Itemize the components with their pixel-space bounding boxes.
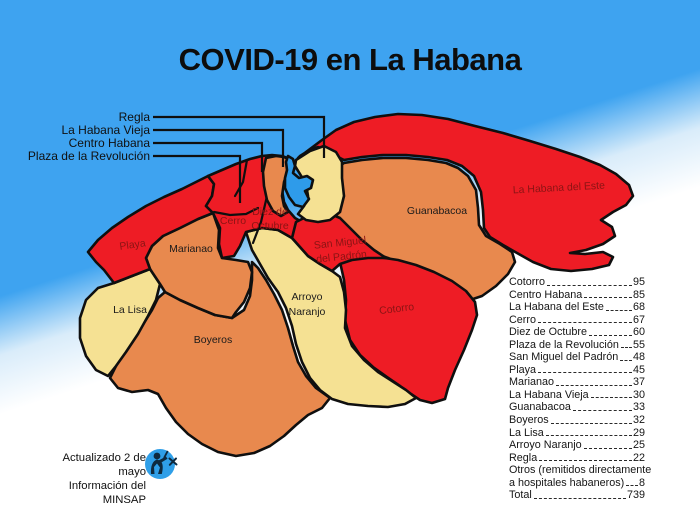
- stat-value: 37: [633, 376, 645, 389]
- label-diez-de-octubre-1: Diez de: [252, 206, 288, 218]
- label-arroyo-naranjo-2: Naranjo: [289, 306, 326, 318]
- stat-label: Boyeros: [509, 414, 549, 427]
- stat-leader: [584, 297, 632, 298]
- stat-value: 60: [633, 326, 645, 339]
- stat-row-marianao: Marianao37: [509, 376, 645, 389]
- updated-date-text: Actualizado 2 de mayo: [34, 451, 146, 479]
- label-arroyo-naranjo-1: Arroyo: [292, 291, 323, 303]
- stat-label: Centro Habana: [509, 289, 582, 302]
- stat-leader: [591, 397, 632, 398]
- stat-label: Guanabacoa: [509, 401, 571, 414]
- stat-leader: [626, 485, 638, 486]
- stat-value: 67: [633, 314, 645, 327]
- stat-value: 30: [633, 389, 645, 402]
- stat-row-plaza: Plaza de la Revolución55: [509, 339, 645, 352]
- stat-label: San Miguel del Padrón: [509, 351, 618, 364]
- stat-value: 55: [633, 339, 645, 352]
- stat-row-guanabacoa: Guanabacoa33: [509, 401, 645, 414]
- stat-row-habana-vieja: La Habana Vieja30: [509, 389, 645, 402]
- stat-value: 22: [633, 452, 645, 465]
- stat-label: Cerro: [509, 314, 536, 327]
- stat-value: 85: [633, 289, 645, 302]
- stat-row-playa: Playa45: [509, 364, 645, 377]
- stat-row-cotorro: Cotorro95: [509, 276, 645, 289]
- stat-leader: [584, 448, 632, 449]
- stat-leader: [534, 498, 626, 499]
- stat-leader: [547, 285, 632, 286]
- stat-leader: [556, 385, 632, 386]
- stat-row-diez-de-octubre: Diez de Octubre60: [509, 326, 645, 339]
- callout-label-regla: Regla: [119, 110, 151, 124]
- label-la-lisa: La Lisa: [113, 304, 147, 316]
- minsap-logo: [145, 449, 177, 479]
- stat-row-otros-line1: Otros (remitidos directamente: [509, 464, 645, 477]
- callout-label-centro-habana: Centro Habana: [69, 136, 151, 150]
- stat-row-otros-line2: a hospitales habaneros)8: [509, 477, 645, 490]
- label-guanabacoa: Guanabacoa: [407, 205, 467, 217]
- label-marianao: Marianao: [169, 243, 213, 255]
- stat-row-regla: Regla22: [509, 452, 645, 465]
- label-boyeros: Boyeros: [194, 334, 233, 346]
- stat-value: 95: [633, 276, 645, 289]
- stat-row-la-lisa: La Lisa29: [509, 427, 645, 440]
- stat-row-centro-habana: Centro Habana85: [509, 289, 645, 302]
- cases-list: Cotorro95 Centro Habana85 La Habana del …: [509, 276, 645, 502]
- stat-label: Plaza de la Revolución: [509, 339, 619, 352]
- stat-label: Arroyo Naranjo: [509, 439, 582, 452]
- stat-value: 32: [633, 414, 645, 427]
- callout-label-plaza: Plaza de la Revolución: [28, 149, 150, 163]
- stat-row-total: Total739: [509, 489, 645, 502]
- label-cerro: Cerro: [220, 215, 246, 227]
- update-credit: Actualizado 2 de mayo Información del MI…: [34, 451, 146, 507]
- stat-value: 33: [633, 401, 645, 414]
- stat-row-cerro: Cerro67: [509, 314, 645, 327]
- stat-leader: [551, 423, 632, 424]
- stat-value: 739: [627, 489, 645, 502]
- stat-label: Diez de Octubre: [509, 326, 587, 339]
- callout-label-habana-vieja: La Habana Vieja: [61, 123, 150, 137]
- source-text: Información del MINSAP: [34, 479, 146, 507]
- stat-value: 68: [633, 301, 645, 314]
- stat-leader: [589, 335, 632, 336]
- stat-row-boyeros: Boyeros32: [509, 414, 645, 427]
- stat-row-arroyo-naranjo: Arroyo Naranjo25: [509, 439, 645, 452]
- stat-label: Cotorro: [509, 276, 545, 289]
- stat-value: 48: [633, 351, 645, 364]
- stat-label: Marianao: [509, 376, 554, 389]
- label-diez-de-octubre-2: Octubre: [251, 220, 289, 232]
- stat-row-san-miguel: San Miguel del Padrón48: [509, 351, 645, 364]
- callout-line-regla: [153, 117, 324, 158]
- stat-value: 8: [639, 477, 645, 490]
- stat-leader: [573, 410, 632, 411]
- stat-label: Playa: [509, 364, 536, 377]
- stat-label: Regla: [509, 452, 537, 465]
- stat-label: a hospitales habaneros): [509, 477, 624, 490]
- stat-leader: [620, 360, 632, 361]
- stat-label: La Habana Vieja: [509, 389, 589, 402]
- stat-leader: [538, 372, 632, 373]
- infographic-canvas: COVID-19 en La Habana: [0, 0, 700, 513]
- stat-label: La Lisa: [509, 427, 544, 440]
- stat-value: 29: [633, 427, 645, 440]
- stat-leader: [539, 460, 632, 461]
- stat-label: Otros (remitidos directamente: [509, 464, 651, 477]
- stat-leader: [546, 435, 632, 436]
- stat-label: La Habana del Este: [509, 301, 604, 314]
- stat-label: Total: [509, 489, 532, 502]
- stat-leader: [606, 310, 632, 311]
- stat-row-habana-del-este: La Habana del Este68: [509, 301, 645, 314]
- stat-leader: [621, 347, 632, 348]
- stat-value: 45: [633, 364, 645, 377]
- stat-value: 25: [633, 439, 645, 452]
- stat-leader: [538, 322, 632, 323]
